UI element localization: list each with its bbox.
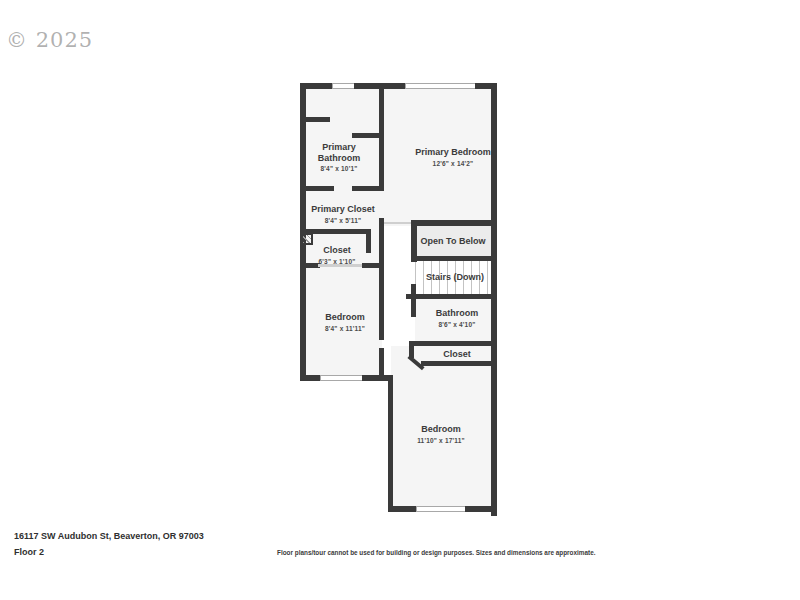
window-marker	[332, 83, 356, 89]
wall	[409, 341, 497, 346]
wall	[300, 375, 322, 381]
room-dims: 6'3" x 1'10"	[302, 258, 372, 266]
room-name: Closet	[422, 349, 492, 360]
room-dims: 11'10" x 17'11"	[396, 437, 486, 445]
wall	[421, 361, 497, 366]
room-name: Bedroom	[305, 312, 385, 323]
room-name: Open To Below	[408, 236, 498, 247]
wall	[406, 294, 497, 299]
room-label-closet-upper: Closet 6'3" x 1'10"	[302, 245, 372, 266]
room-name: Primary Closet	[298, 204, 388, 215]
window-marker	[320, 375, 364, 381]
wall	[381, 83, 407, 89]
room-label-primary-bathroom: Primary Bathroom 8'4" x 10'1"	[307, 142, 371, 173]
footer-disclaimer: Floor plans/tour cannot be used for buil…	[277, 549, 596, 556]
wall	[300, 117, 330, 122]
room-name: Closet	[302, 245, 372, 256]
room-label-bedroom-lower: Bedroom 11'10" x 17'11"	[396, 424, 486, 445]
wall	[411, 299, 416, 317]
room-label-primary-closet: Primary Closet 8'4" x 5'11"	[298, 204, 388, 225]
room-label-bathroom-lower: Bathroom 8'6" x 4'10"	[417, 308, 497, 329]
room-label-bedroom-left: Bedroom 8'4" x 11'11"	[305, 312, 385, 333]
cased-opening-line	[384, 222, 411, 224]
room-name: Bathroom	[417, 308, 497, 319]
room-dims: 12'6" x 14'2"	[398, 160, 508, 168]
room-label-stairs: Stairs (Down)	[410, 272, 500, 283]
chimney-hatch	[301, 233, 313, 245]
footer-address: 16117 SW Audubon St, Beaverton, OR 97003	[14, 531, 204, 541]
wall	[465, 506, 497, 512]
room-dims: 8'4" x 11'11"	[305, 325, 385, 333]
window-marker	[405, 83, 477, 89]
room-label-closet-lower: Closet	[422, 349, 492, 360]
room-name: Primary Bedroom	[398, 147, 508, 158]
wall	[379, 83, 384, 190]
copyright-watermark: © 2025	[6, 28, 93, 52]
room-label-open-to-below: Open To Below	[408, 236, 498, 247]
room-dims: 8'6" x 4'10"	[417, 321, 497, 329]
wall	[388, 378, 393, 512]
room-dims: 8'4" x 10'1"	[307, 165, 371, 173]
wall	[379, 348, 384, 378]
wall	[388, 506, 418, 512]
wall	[411, 256, 497, 261]
wall	[411, 220, 497, 226]
room-label-primary-bedroom: Primary Bedroom 12'6" x 14'2"	[398, 147, 508, 168]
room-name: Bedroom	[396, 424, 486, 435]
room-name: Primary Bathroom	[307, 142, 371, 163]
floor-plan-page: © 2025 Primary Bathroom	[0, 0, 800, 600]
room-name: Stairs (Down)	[410, 272, 500, 283]
window-marker	[416, 506, 467, 512]
footer-floor-label: Floor 2	[14, 547, 44, 557]
room-dims: 8'4" x 5'11"	[298, 217, 388, 225]
wall	[300, 186, 334, 191]
